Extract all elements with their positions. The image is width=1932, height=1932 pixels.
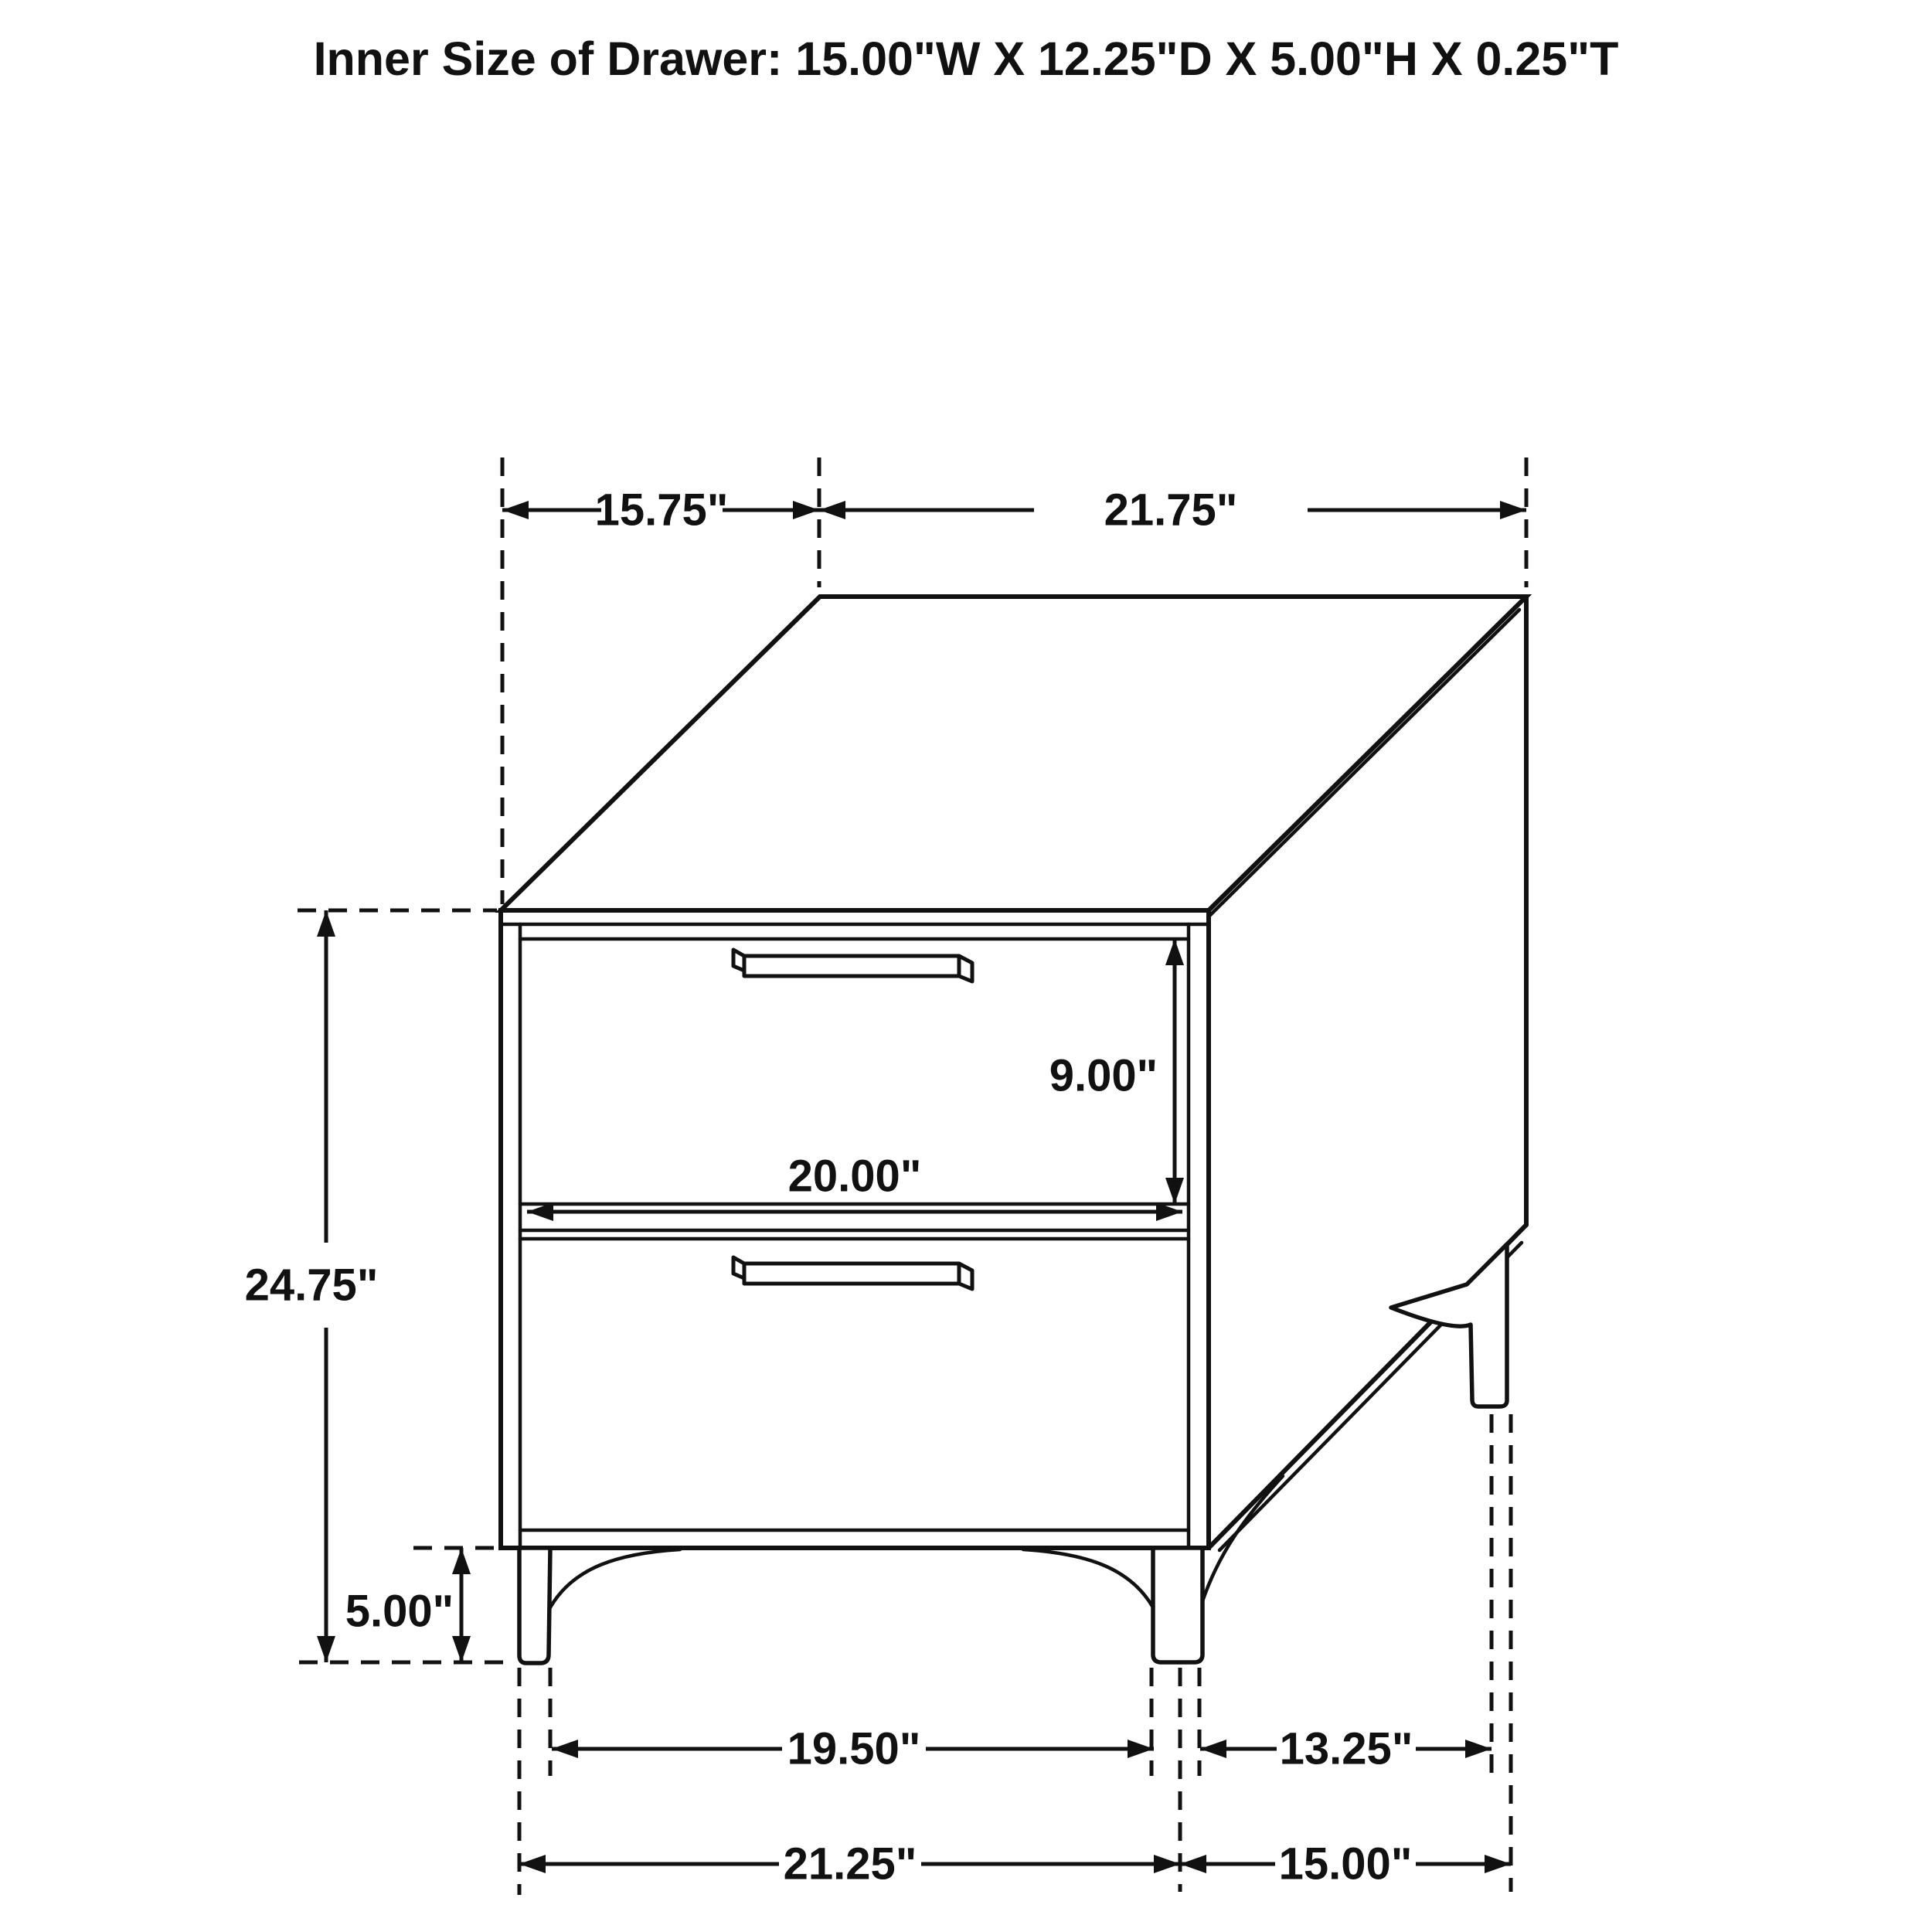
front-left-leg [519,1548,550,1663]
dim-label-side-leg-span: 13.25" [1280,1724,1413,1774]
drawer2-handle-right-cap [959,1264,972,1289]
dim-label-side-outer-depth: 15.00" [1279,1839,1413,1889]
diagram-title: Inner Size of Drawer: 15.00"W X 12.25"D … [314,32,1619,85]
dim-label-front-leg-span: 19.50" [787,1724,921,1774]
furniture-dimension-diagram: Inner Size of Drawer: 15.00"W X 12.25"D … [0,0,1932,1932]
drawer1-handle-icon [744,956,959,976]
dim-label-front-outer-width: 21.25" [784,1839,917,1889]
front-right-leg [1153,1548,1202,1662]
dim-label-leg-height: 5.00" [345,1587,454,1637]
drawer2-handle-icon [744,1264,959,1284]
drawer1-handle-right-cap [959,956,972,981]
dim-label-top-width: 21.75" [1104,485,1238,536]
dim-label-overall-height: 24.75" [245,1260,379,1311]
nightstand-dimension-drawing: Inner Size of Drawer: 15.00"W X 12.25"D … [0,0,1932,1932]
dim-label-drawer-height: 9.00" [1049,1051,1158,1101]
dim-label-drawer-width: 20.00" [788,1151,922,1202]
dim-label-top-depth: 15.75" [595,485,729,536]
